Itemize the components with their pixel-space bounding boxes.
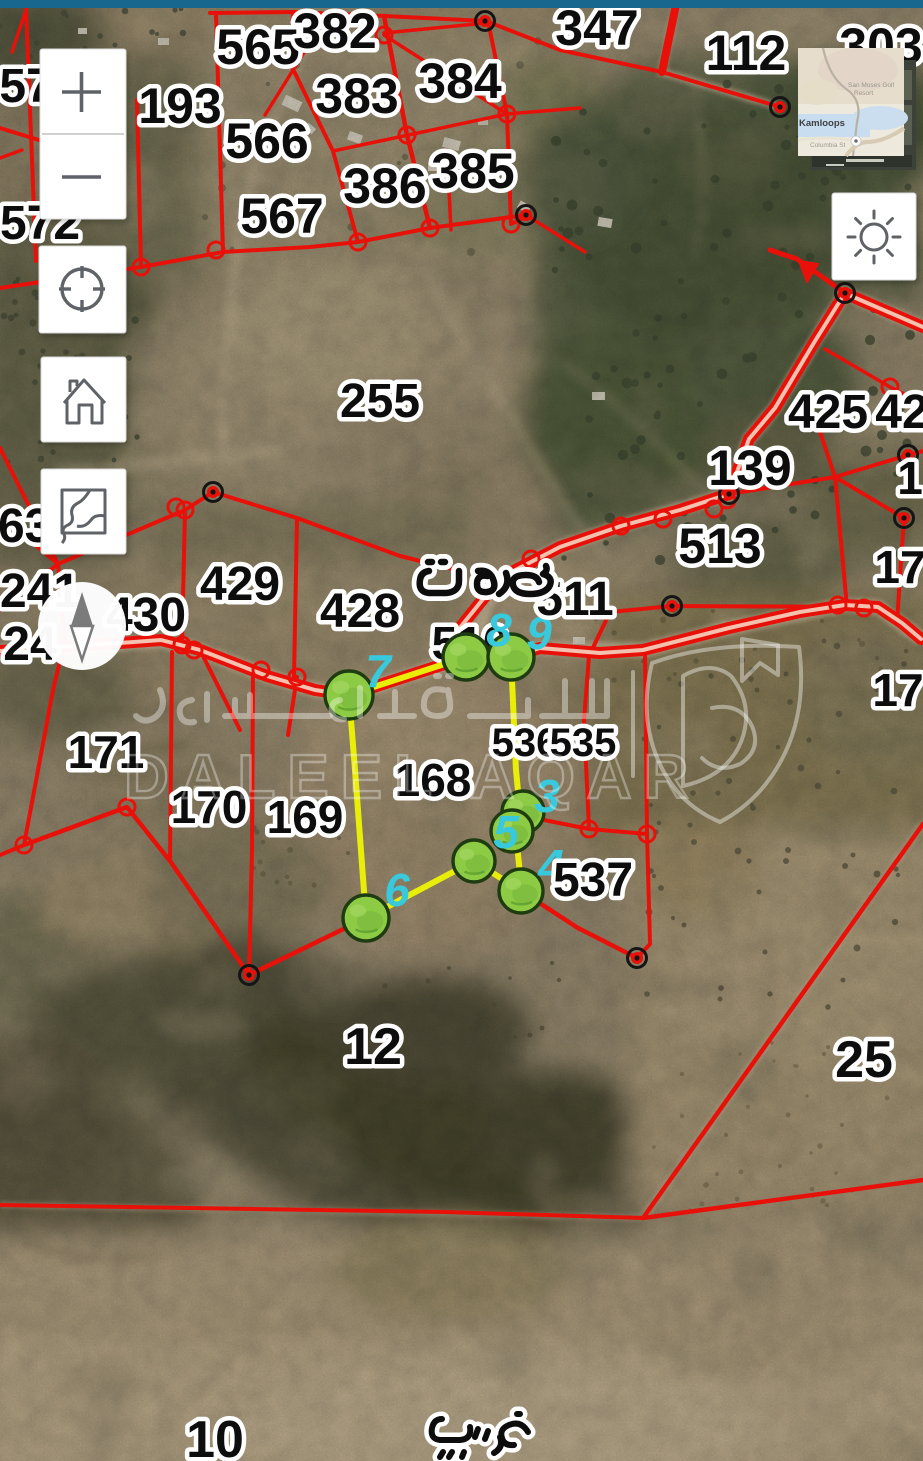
svg-text:1: 1 [897, 452, 923, 504]
svg-text:428: 428 [320, 585, 400, 638]
svg-text:567: 567 [240, 188, 323, 244]
svg-text:384: 384 [418, 53, 502, 109]
svg-text:Kamloops: Kamloops [799, 118, 845, 129]
svg-text:513: 513 [678, 518, 761, 574]
svg-text:193: 193 [138, 78, 221, 134]
svg-text:25: 25 [835, 1031, 893, 1089]
svg-text:42: 42 [875, 386, 923, 439]
svg-text:Columbia St: Columbia St [810, 142, 846, 149]
svg-text:6: 6 [384, 864, 410, 916]
svg-text:537: 537 [553, 854, 633, 907]
svg-text:425: 425 [788, 386, 868, 439]
svg-text:429: 429 [200, 558, 280, 611]
svg-text:139: 139 [708, 440, 791, 496]
svg-text:565: 565 [216, 19, 299, 75]
svg-text:17: 17 [872, 664, 923, 716]
svg-text:385: 385 [431, 143, 514, 199]
svg-text:Resort: Resort [854, 90, 873, 97]
svg-text:566: 566 [225, 113, 308, 169]
svg-text:7: 7 [365, 645, 393, 697]
svg-text:112: 112 [706, 25, 787, 81]
svg-text:383: 383 [315, 68, 398, 124]
svg-text:8: 8 [486, 604, 512, 656]
svg-text:17: 17 [874, 541, 923, 593]
svg-text:San Moses Golf: San Moses Golf [848, 82, 894, 89]
svg-text:386: 386 [343, 158, 426, 214]
svg-text:382: 382 [293, 3, 376, 59]
svg-text:12: 12 [344, 1018, 402, 1076]
svg-text:5: 5 [493, 806, 520, 858]
svg-text:DALEEL AQAR: DALEEL AQAR [124, 743, 700, 812]
svg-text:347: 347 [555, 0, 638, 56]
svg-text:10: 10 [186, 1411, 244, 1461]
svg-text:255: 255 [340, 375, 420, 428]
